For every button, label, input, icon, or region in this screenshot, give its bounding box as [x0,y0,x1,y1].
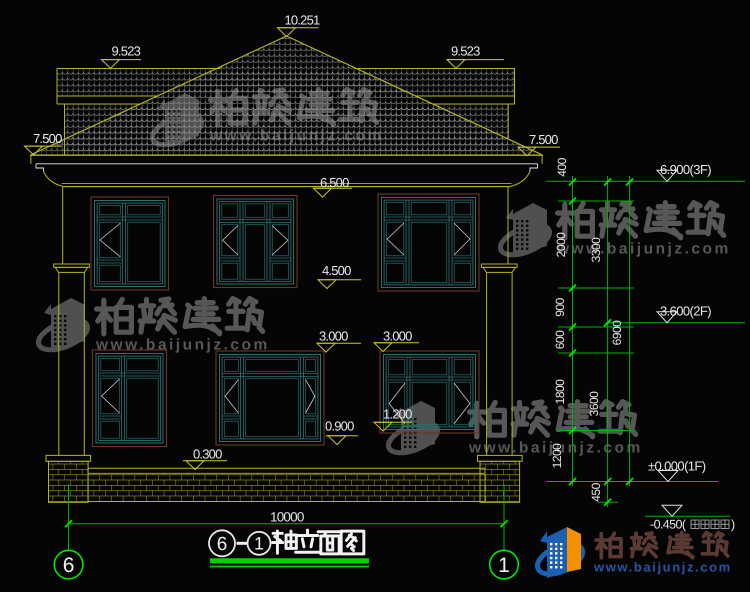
svg-text:0.900: 0.900 [325,419,354,434]
svg-text:±0.000(1F): ±0.000(1F) [648,459,706,474]
svg-text:6.900(3F): 6.900(3F) [660,162,711,177]
svg-text:10.251: 10.251 [285,13,321,28]
svg-text:3.600(2F): 3.600(2F) [660,304,711,319]
svg-text:4.500: 4.500 [322,263,351,278]
svg-text:www.baijunjz.com: www.baijunjz.com [593,560,732,575]
svg-text:6.500: 6.500 [320,175,349,190]
svg-text:3600: 3600 [587,391,601,417]
svg-text:1: 1 [498,554,510,577]
svg-text:600: 600 [553,330,567,349]
svg-text:2000: 2000 [554,232,568,258]
svg-text:6900: 6900 [610,320,624,346]
svg-text:7.500: 7.500 [529,132,558,147]
svg-text:0.300: 0.300 [193,447,222,462]
svg-text:1.200: 1.200 [383,407,412,422]
svg-text:450: 450 [589,482,603,501]
svg-text:3.000: 3.000 [319,329,348,344]
svg-text:10000: 10000 [270,510,304,525]
svg-text:900: 900 [553,297,567,316]
svg-text:-0.450(: -0.450( [650,518,687,532]
svg-text:www.baijunjz.com: www.baijunjz.com [556,241,731,258]
svg-text:1: 1 [254,534,264,554]
svg-text:1200: 1200 [550,443,564,469]
svg-text:7.500: 7.500 [33,131,62,146]
svg-text:3.000: 3.000 [383,329,412,344]
svg-text:9.523: 9.523 [112,44,141,59]
svg-text:): ) [731,518,735,532]
svg-text:1800: 1800 [553,379,567,405]
svg-text:6: 6 [63,554,75,577]
svg-text:6: 6 [217,534,228,555]
svg-text:9.523: 9.523 [451,44,480,59]
svg-text:3300: 3300 [589,237,603,263]
svg-text:400: 400 [555,157,569,176]
